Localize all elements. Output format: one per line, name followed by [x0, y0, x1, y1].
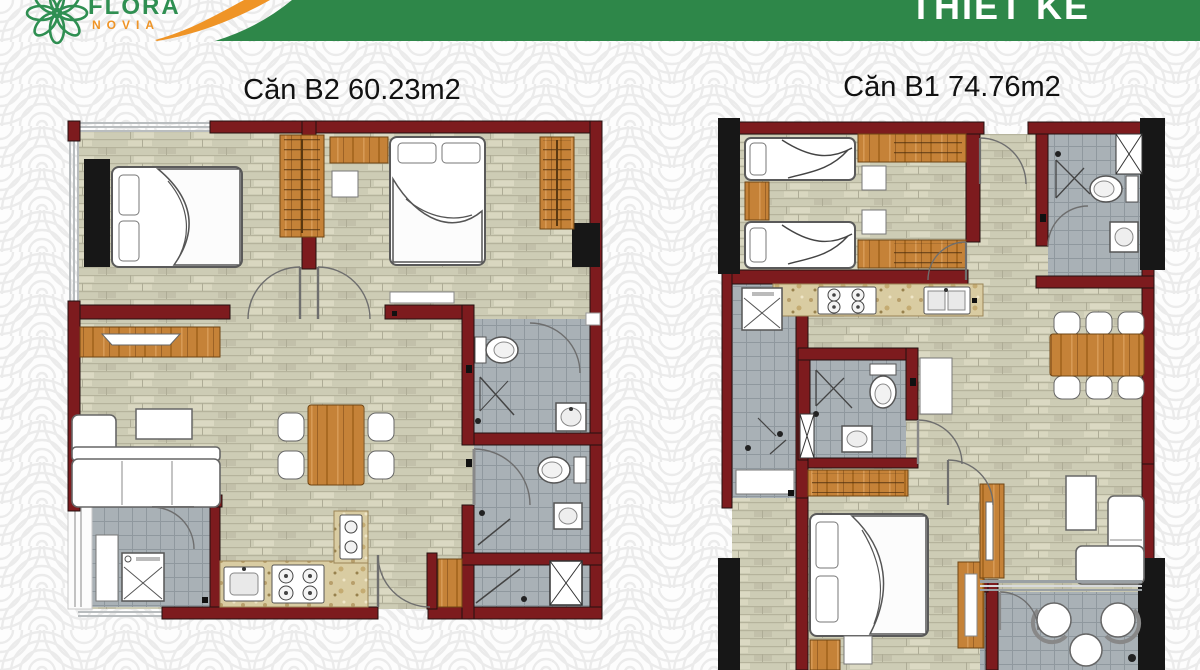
shower-head-icon — [475, 418, 481, 424]
chair-icon — [1054, 312, 1080, 335]
faucet-icon — [745, 445, 751, 451]
shaft-icon — [1116, 134, 1142, 174]
coffee-table-icon — [1066, 476, 1096, 530]
cabinet-icon — [920, 358, 952, 414]
door-panel-wood — [438, 559, 462, 607]
chair-icon — [1118, 376, 1144, 399]
column — [1140, 118, 1165, 270]
banner-title: THIẾT KẾ — [830, 0, 1170, 28]
wardrobe-icon — [280, 135, 324, 237]
flora-flower-icon — [27, 0, 87, 43]
faucet-icon — [777, 431, 783, 437]
shaft-icon — [800, 414, 814, 458]
wardrobe-icon — [808, 470, 908, 496]
floorplan-b1 — [718, 118, 1165, 670]
column — [84, 159, 110, 267]
bath-sink-icon — [556, 403, 586, 431]
wardrobe-icon — [858, 240, 966, 268]
tv-icon — [986, 502, 993, 560]
kitchen — [773, 284, 983, 316]
desk-icon — [330, 137, 388, 163]
chair-icon — [1086, 376, 1112, 399]
pillow-icon — [816, 522, 838, 568]
shower-head-icon — [479, 510, 485, 516]
wardrobe-icon — [858, 134, 966, 162]
toilet-icon — [538, 457, 586, 483]
bath-sink-icon — [1110, 222, 1138, 252]
bath-sink-icon — [842, 426, 872, 452]
nightstand-icon — [862, 210, 886, 234]
nightstand-icon — [332, 171, 358, 197]
toilet-icon — [1090, 176, 1138, 202]
chair-icon — [368, 451, 394, 479]
washing-machine-icon — [742, 288, 782, 330]
plan-b2-title: Căn B2 60.23m2 — [192, 74, 512, 107]
washing-machine-icon — [122, 553, 164, 601]
bath-sink-icon — [554, 503, 582, 529]
plan-b1-title: Căn B1 74.76m2 — [792, 71, 1112, 104]
pillow-icon — [119, 175, 139, 215]
nightstand-icon — [745, 182, 769, 220]
toilet-icon — [870, 364, 896, 408]
nightstand-icon — [810, 640, 840, 670]
dining-set — [1050, 312, 1144, 399]
shower-head-icon — [1055, 151, 1061, 157]
column — [572, 223, 600, 267]
bathroom-2-floor — [474, 445, 590, 553]
chair-icon — [1086, 312, 1112, 335]
logo-subbrand: NOVIA — [92, 18, 160, 32]
window-sliver — [586, 313, 600, 325]
pillow-icon — [750, 143, 766, 175]
balcony-rail — [68, 505, 92, 609]
chair-icon — [278, 413, 304, 441]
chair-icon — [1054, 376, 1080, 399]
shelf-icon — [390, 292, 454, 303]
stove-icon — [272, 565, 324, 603]
nightstand-icon — [844, 636, 872, 664]
column — [718, 558, 740, 670]
pillow-icon — [750, 228, 766, 262]
basin-icon — [736, 470, 794, 494]
stove-icon — [818, 287, 876, 314]
chair-icon — [278, 451, 304, 479]
dining-table-icon — [1050, 334, 1144, 376]
floorplan-b2 — [62, 115, 610, 623]
nightstand-icon — [862, 166, 886, 190]
pillow-icon — [119, 221, 139, 261]
cabinet-icon — [96, 535, 118, 601]
shaft-icon — [550, 561, 582, 605]
coffee-table-icon — [136, 409, 192, 439]
chair-icon — [1118, 312, 1144, 335]
wardrobe-icon — [540, 137, 574, 229]
pillow-icon — [398, 143, 436, 163]
design-sheet: { "header": { "logo": { "brand": "FLORA"… — [0, 0, 1200, 670]
pillow-icon — [442, 143, 480, 163]
toilet-icon — [475, 337, 518, 363]
pillow-icon — [816, 576, 838, 622]
tv-icon — [102, 334, 180, 345]
tv-console — [80, 327, 220, 357]
column — [718, 118, 740, 274]
round-table-icon — [1070, 634, 1102, 666]
chair-icon — [368, 413, 394, 441]
dining-table-icon — [308, 405, 364, 485]
